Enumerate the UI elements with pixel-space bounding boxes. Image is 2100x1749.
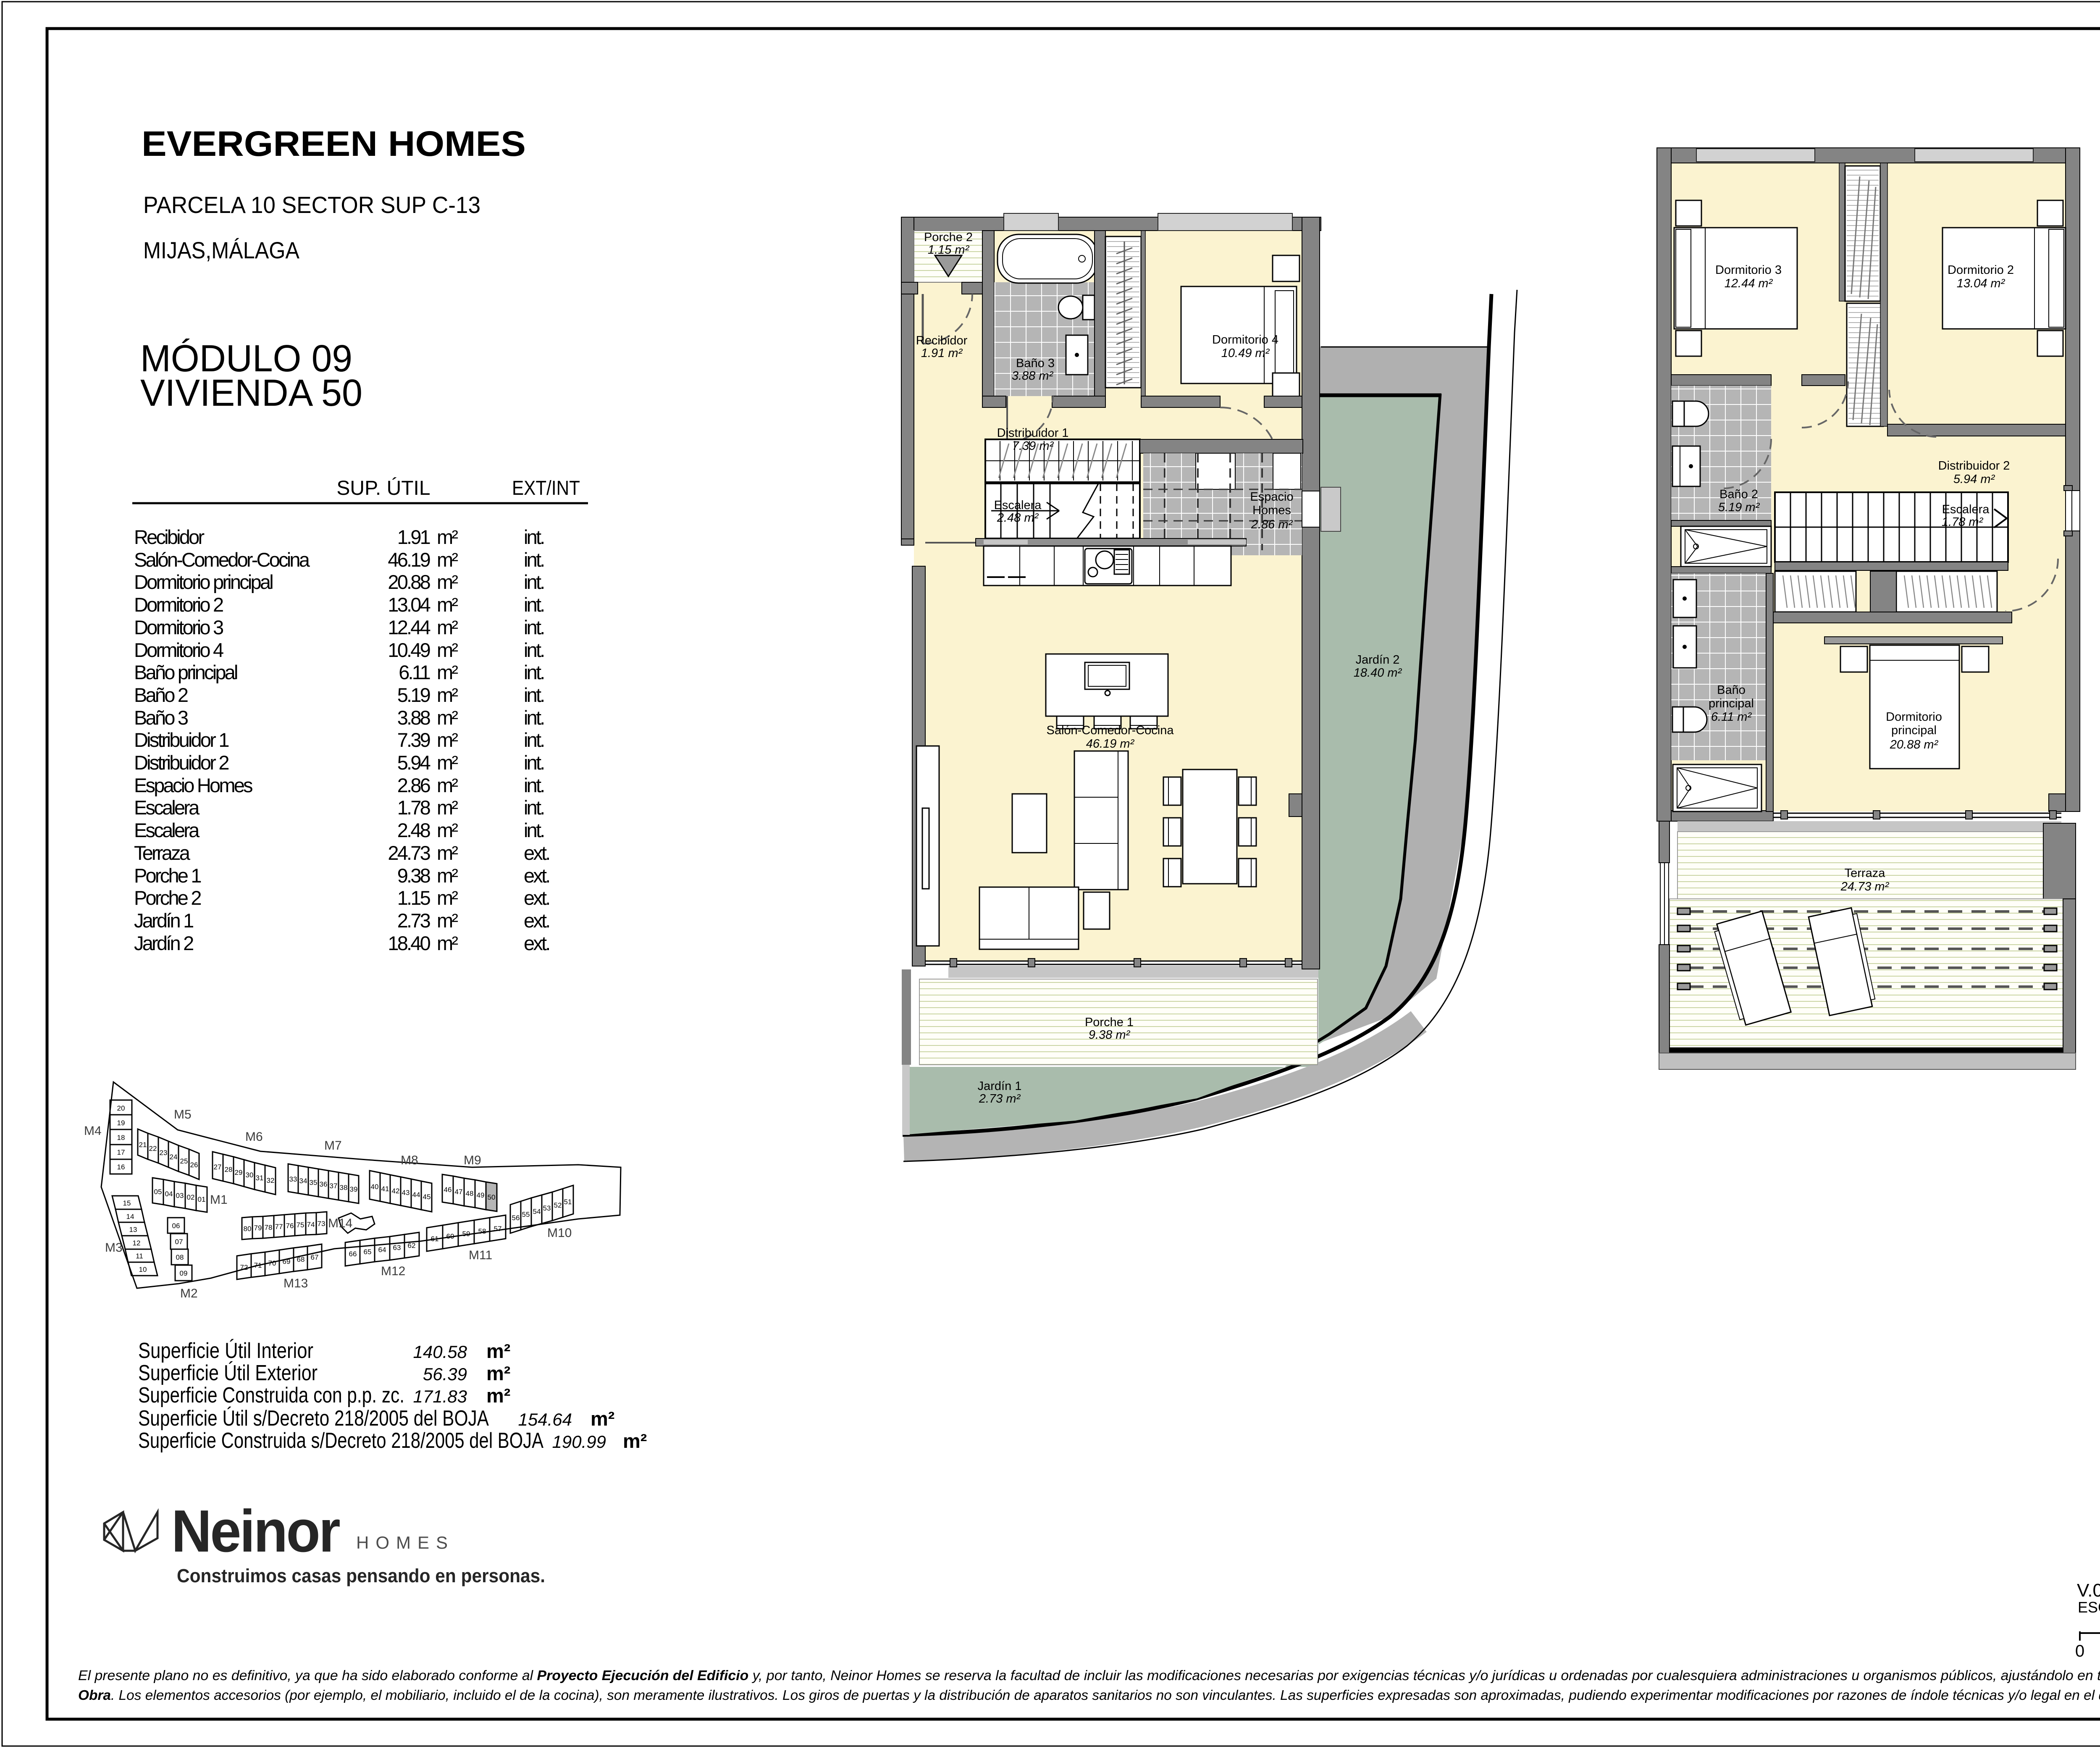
- svg-text:46.19 m²: 46.19 m²: [1086, 737, 1135, 751]
- svg-text:10.49: 10.49: [388, 639, 430, 661]
- svg-text:1.15: 1.15: [397, 887, 430, 909]
- svg-text:1.78: 1.78: [397, 796, 430, 819]
- svg-text:ext.: ext.: [524, 909, 549, 932]
- svg-text:12: 12: [133, 1239, 141, 1247]
- svg-text:int.: int.: [524, 526, 544, 548]
- svg-text:04: 04: [165, 1190, 173, 1198]
- svg-text:55: 55: [522, 1211, 530, 1219]
- svg-text:Homes: Homes: [1252, 504, 1291, 517]
- svg-text:03: 03: [176, 1192, 184, 1200]
- svg-text:28: 28: [225, 1166, 233, 1174]
- svg-text:m²: m²: [486, 1384, 510, 1407]
- svg-text:3.88 m²: 3.88 m²: [1012, 369, 1054, 383]
- svg-text:m²: m²: [437, 887, 458, 909]
- svg-text:M11: M11: [469, 1248, 492, 1262]
- svg-text:M2: M2: [180, 1287, 198, 1300]
- svg-text:40: 40: [371, 1183, 379, 1191]
- svg-text:15: 15: [123, 1199, 131, 1207]
- svg-text:12.44: 12.44: [388, 616, 430, 638]
- svg-text:Escalera: Escalera: [134, 819, 200, 841]
- svg-text:Baño: Baño: [1717, 683, 1746, 697]
- svg-text:70: 70: [268, 1259, 276, 1267]
- svg-text:19: 19: [117, 1119, 125, 1127]
- svg-text:16: 16: [117, 1163, 125, 1171]
- svg-text:67: 67: [311, 1253, 319, 1261]
- svg-text:71: 71: [254, 1261, 262, 1269]
- svg-text:2.86 m²: 2.86 m²: [1251, 518, 1293, 531]
- svg-text:77: 77: [275, 1223, 283, 1231]
- svg-text:44: 44: [412, 1191, 420, 1199]
- svg-text:Espacio: Espacio: [1250, 490, 1293, 504]
- svg-text:48: 48: [466, 1190, 474, 1198]
- svg-text:24: 24: [170, 1153, 178, 1161]
- svg-text:49: 49: [477, 1191, 485, 1199]
- svg-text:54: 54: [533, 1208, 541, 1216]
- svg-text:154.64: 154.64: [518, 1410, 572, 1429]
- svg-text:VIVIENDA 50: VIVIENDA 50: [140, 372, 362, 414]
- svg-text:37: 37: [330, 1182, 338, 1190]
- svg-text:43: 43: [402, 1189, 410, 1197]
- svg-text:14: 14: [126, 1213, 134, 1221]
- svg-text:Porche 1: Porche 1: [134, 864, 201, 887]
- svg-text:m²: m²: [486, 1362, 510, 1384]
- svg-text:Dormitorio 3: Dormitorio 3: [134, 616, 223, 638]
- svg-text:m²: m²: [437, 932, 458, 954]
- svg-text:60: 60: [446, 1232, 454, 1240]
- svg-text:2.48: 2.48: [397, 819, 430, 841]
- svg-text:1.91 m²: 1.91 m²: [921, 347, 963, 360]
- svg-text:Distribuidor 2: Distribuidor 2: [1938, 459, 2010, 473]
- svg-text:80: 80: [244, 1225, 252, 1233]
- svg-text:MIJAS,MÁLAGA: MIJAS,MÁLAGA: [143, 237, 300, 263]
- svg-text:2.48 m²: 2.48 m²: [997, 511, 1039, 525]
- svg-text:22: 22: [149, 1145, 157, 1153]
- svg-text:20: 20: [117, 1104, 125, 1112]
- svg-text:int.: int.: [524, 616, 544, 638]
- svg-text:51: 51: [564, 1198, 572, 1206]
- svg-text:Porche 2: Porche 2: [924, 231, 973, 244]
- svg-text:78: 78: [265, 1224, 273, 1232]
- svg-text:Dormitorio: Dormitorio: [1886, 710, 1942, 724]
- svg-text:21: 21: [139, 1141, 147, 1149]
- svg-text:PARCELA 10 SECTOR SUP C-13: PARCELA 10 SECTOR SUP C-13: [143, 192, 480, 218]
- svg-text:31: 31: [256, 1174, 264, 1182]
- svg-text:Espacio Homes: Espacio Homes: [134, 774, 252, 796]
- svg-text:01: 01: [198, 1195, 206, 1203]
- svg-text:M10: M10: [547, 1226, 572, 1240]
- svg-text:63: 63: [393, 1244, 401, 1252]
- svg-text:10: 10: [139, 1266, 147, 1274]
- svg-text:39: 39: [350, 1185, 358, 1193]
- svg-text:9.38 m²: 9.38 m²: [1089, 1028, 1131, 1042]
- svg-text:Dormitorio 2: Dormitorio 2: [1948, 263, 2014, 277]
- svg-text:64: 64: [378, 1246, 386, 1254]
- svg-text:02: 02: [187, 1193, 195, 1201]
- svg-text:69: 69: [283, 1258, 291, 1266]
- svg-text:65: 65: [364, 1248, 372, 1256]
- svg-text:HOMES: HOMES: [356, 1533, 454, 1552]
- svg-text:M8: M8: [401, 1153, 418, 1167]
- svg-text:2.73: 2.73: [397, 909, 430, 932]
- svg-text:int.: int.: [524, 594, 544, 616]
- svg-text:1.15 m²: 1.15 m²: [928, 243, 970, 257]
- svg-text:32: 32: [267, 1177, 275, 1184]
- svg-text:Distribuidor 1: Distribuidor 1: [997, 426, 1069, 440]
- svg-text:9.38: 9.38: [397, 864, 430, 887]
- svg-text:int.: int.: [524, 796, 544, 819]
- svg-text:35: 35: [310, 1179, 318, 1187]
- svg-text:30: 30: [246, 1171, 254, 1179]
- svg-text:171.83: 171.83: [413, 1387, 467, 1406]
- svg-text:Construimos casas pensando en: Construimos casas pensando en personas.: [177, 1565, 545, 1586]
- svg-text:SUP. ÚTIL: SUP. ÚTIL: [336, 477, 430, 499]
- svg-text:Superficie Construida con p.p.: Superficie Construida con p.p. zc.: [138, 1383, 404, 1408]
- svg-text:m²: m²: [437, 842, 458, 864]
- svg-text:6.11 m²: 6.11 m²: [1711, 710, 1752, 724]
- svg-text:principal: principal: [1891, 724, 1937, 737]
- svg-text:20.88: 20.88: [388, 571, 430, 593]
- svg-text:Salón-Comedor-Cocina: Salón-Comedor-Cocina: [1046, 724, 1174, 737]
- svg-text:76: 76: [286, 1222, 294, 1230]
- svg-text:07: 07: [175, 1238, 183, 1246]
- svg-text:m²: m²: [437, 549, 458, 571]
- svg-text:m²: m²: [437, 909, 458, 932]
- svg-text:m²: m²: [437, 864, 458, 887]
- svg-text:42: 42: [392, 1187, 400, 1195]
- svg-text:m²: m²: [437, 616, 458, 638]
- svg-text:M9: M9: [464, 1153, 481, 1167]
- svg-text:Jardín 1: Jardín 1: [134, 909, 193, 932]
- svg-text:Porche 1: Porche 1: [1085, 1016, 1134, 1029]
- svg-text:m²: m²: [437, 796, 458, 819]
- svg-text:int.: int.: [524, 729, 544, 751]
- svg-text:int.: int.: [524, 571, 544, 593]
- svg-text:m²: m²: [486, 1340, 510, 1362]
- svg-text:M13: M13: [283, 1276, 308, 1290]
- svg-text:0: 0: [2075, 1642, 2084, 1660]
- svg-text:68: 68: [297, 1255, 305, 1263]
- svg-text:m²: m²: [437, 774, 458, 796]
- svg-text:27: 27: [214, 1163, 222, 1171]
- svg-text:Jardín 1: Jardín 1: [978, 1079, 1022, 1093]
- svg-text:11: 11: [136, 1252, 143, 1260]
- svg-text:6.11: 6.11: [399, 661, 430, 683]
- svg-text:Baño 3: Baño 3: [134, 706, 188, 729]
- svg-text:26: 26: [190, 1161, 198, 1169]
- svg-text:Neinor: Neinor: [171, 1498, 340, 1565]
- svg-text:m²: m²: [437, 526, 458, 548]
- svg-text:Jardín 2: Jardín 2: [134, 932, 193, 954]
- svg-text:18.40 m²: 18.40 m²: [1354, 666, 1402, 680]
- svg-text:M5: M5: [174, 1108, 192, 1121]
- svg-text:M1: M1: [210, 1193, 228, 1207]
- svg-text:5.94 m²: 5.94 m²: [1953, 473, 1995, 486]
- svg-text:18.40: 18.40: [388, 932, 430, 954]
- svg-text:Superficie Útil s/Decreto 218/: Superficie Útil s/Decreto 218/2005 del B…: [138, 1406, 489, 1431]
- svg-text:int.: int.: [524, 706, 544, 729]
- svg-text:M6: M6: [245, 1130, 263, 1144]
- svg-text:3.88: 3.88: [397, 706, 430, 729]
- svg-text:08: 08: [176, 1253, 184, 1261]
- svg-text:m²: m²: [591, 1408, 614, 1430]
- svg-text:61: 61: [431, 1235, 439, 1243]
- svg-text:EVERGREEN HOMES: EVERGREEN HOMES: [142, 124, 526, 163]
- svg-text:m²: m²: [623, 1430, 647, 1452]
- svg-text:El presente plano no es defini: El presente plano no es definitivo, ya q…: [78, 1668, 2100, 1683]
- svg-text:74: 74: [307, 1221, 315, 1229]
- svg-text:Jardín 2: Jardín 2: [1356, 653, 1400, 667]
- svg-text:46: 46: [444, 1186, 452, 1194]
- svg-text:M14: M14: [328, 1216, 352, 1230]
- svg-text:52: 52: [554, 1201, 562, 1209]
- svg-text:50: 50: [488, 1193, 496, 1201]
- svg-text:56: 56: [512, 1214, 520, 1222]
- svg-text:m²: m²: [437, 594, 458, 616]
- svg-text:34: 34: [299, 1177, 307, 1185]
- svg-text:int.: int.: [524, 751, 544, 774]
- svg-text:M3: M3: [105, 1241, 123, 1255]
- svg-text:75: 75: [297, 1221, 304, 1229]
- svg-text:73: 73: [318, 1220, 325, 1228]
- svg-text:ext.: ext.: [524, 932, 549, 954]
- svg-text:M4: M4: [84, 1124, 102, 1138]
- svg-text:13: 13: [129, 1226, 137, 1234]
- svg-text:int.: int.: [524, 684, 544, 706]
- svg-text:m²: m²: [437, 819, 458, 841]
- svg-text:M12: M12: [381, 1264, 405, 1278]
- svg-text:principal: principal: [1709, 697, 1754, 710]
- svg-text:M7: M7: [324, 1139, 342, 1153]
- svg-text:13.04 m²: 13.04 m²: [1957, 277, 2005, 290]
- svg-text:5.94: 5.94: [397, 751, 430, 774]
- svg-text:59: 59: [462, 1230, 470, 1238]
- svg-text:ext.: ext.: [524, 864, 549, 887]
- svg-text:Baño 2: Baño 2: [134, 684, 188, 706]
- svg-text:17: 17: [117, 1148, 125, 1156]
- svg-text:56.39: 56.39: [423, 1364, 467, 1384]
- svg-text:Distribuidor 1: Distribuidor 1: [134, 729, 228, 751]
- svg-text:12.44 m²: 12.44 m²: [1725, 277, 1773, 290]
- svg-text:190.99: 190.99: [552, 1432, 606, 1452]
- svg-text:29: 29: [235, 1169, 243, 1177]
- svg-text:int.: int.: [524, 774, 544, 796]
- svg-text:72: 72: [240, 1263, 248, 1271]
- svg-text:2.86: 2.86: [397, 774, 430, 796]
- svg-text:38: 38: [340, 1184, 348, 1192]
- svg-text:Recibidor: Recibidor: [134, 526, 204, 548]
- svg-text:Obra. Los elementos accesorios: Obra. Los elementos accesorios (por ejem…: [78, 1687, 2100, 1703]
- svg-text:int.: int.: [524, 819, 544, 841]
- svg-text:05: 05: [154, 1188, 162, 1196]
- svg-text:7.39: 7.39: [397, 729, 430, 751]
- svg-text:m²: m²: [437, 729, 458, 751]
- svg-text:41: 41: [381, 1185, 389, 1193]
- svg-text:45: 45: [423, 1193, 431, 1201]
- svg-text:ESCALA GRÁFICA: ESCALA GRÁFICA: [2078, 1599, 2100, 1616]
- svg-text:20.88 m²: 20.88 m²: [1890, 738, 1939, 751]
- svg-text:09: 09: [180, 1269, 188, 1277]
- svg-text:Baño 2: Baño 2: [1719, 488, 1758, 501]
- svg-text:Recibidor: Recibidor: [916, 334, 968, 347]
- svg-text:2.73 m²: 2.73 m²: [979, 1092, 1021, 1106]
- svg-text:1.91: 1.91: [397, 526, 430, 548]
- svg-text:66: 66: [349, 1250, 357, 1258]
- svg-text:Superficie Construida s/Decret: Superficie Construida s/Decreto 218/2005…: [138, 1429, 543, 1453]
- svg-text:m²: m²: [437, 706, 458, 729]
- svg-text:24.73 m²: 24.73 m²: [1840, 880, 1890, 893]
- svg-text:53: 53: [543, 1204, 551, 1212]
- svg-text:Dormitorio 4: Dormitorio 4: [134, 639, 223, 661]
- svg-text:Dormitorio 3: Dormitorio 3: [1715, 263, 1782, 277]
- svg-text:Dormitorio 4: Dormitorio 4: [1212, 333, 1278, 347]
- svg-text:Escalera: Escalera: [134, 796, 200, 819]
- svg-text:Superficie Útil Exterior: Superficie Útil Exterior: [138, 1361, 318, 1385]
- svg-text:24.73: 24.73: [388, 842, 430, 864]
- svg-text:62: 62: [408, 1242, 416, 1250]
- svg-text:int.: int.: [524, 549, 544, 571]
- svg-text:5.19 m²: 5.19 m²: [1718, 501, 1760, 514]
- svg-text:5.19: 5.19: [397, 684, 430, 706]
- svg-text:m²: m²: [437, 684, 458, 706]
- svg-text:Porche 2: Porche 2: [134, 887, 201, 909]
- svg-text:m²: m²: [437, 571, 458, 593]
- svg-text:23: 23: [160, 1149, 168, 1157]
- svg-text:33: 33: [289, 1175, 297, 1183]
- svg-text:1.78 m²: 1.78 m²: [1942, 515, 1984, 529]
- svg-text:m²: m²: [437, 639, 458, 661]
- svg-text:Distribuidor 2: Distribuidor 2: [134, 751, 228, 774]
- svg-text:79: 79: [254, 1224, 262, 1232]
- svg-text:57: 57: [494, 1225, 502, 1233]
- svg-text:m²: m²: [437, 751, 458, 774]
- svg-text:int.: int.: [524, 639, 544, 661]
- svg-text:25: 25: [180, 1157, 188, 1165]
- svg-text:Dormitorio principal: Dormitorio principal: [134, 571, 273, 593]
- svg-text:Terraza: Terraza: [1845, 867, 1886, 880]
- svg-text:Escalera: Escalera: [994, 499, 1042, 512]
- svg-text:int.: int.: [524, 661, 544, 683]
- svg-text:m²: m²: [437, 661, 458, 683]
- svg-text:10.49 m²: 10.49 m²: [1221, 347, 1270, 360]
- svg-text:140.58: 140.58: [413, 1342, 467, 1362]
- svg-text:7.39 m²: 7.39 m²: [1012, 439, 1054, 453]
- svg-text:EXT/INT: EXT/INT: [512, 477, 580, 499]
- svg-text:Escalera: Escalera: [1942, 503, 1990, 516]
- svg-text:18: 18: [117, 1134, 125, 1142]
- svg-text:ext.: ext.: [524, 887, 549, 909]
- svg-text:V.03 - FEBRERO 2022: V.03 - FEBRERO 2022: [2077, 1580, 2100, 1601]
- svg-text:Baño 3: Baño 3: [1016, 357, 1055, 370]
- svg-text:13.04: 13.04: [388, 594, 430, 616]
- svg-text:Dormitorio 2: Dormitorio 2: [134, 594, 223, 616]
- svg-text:ext.: ext.: [524, 842, 549, 864]
- svg-text:47: 47: [455, 1188, 463, 1196]
- svg-text:Terraza: Terraza: [134, 842, 191, 864]
- svg-text:Salón-Comedor-Cocina: Salón-Comedor-Cocina: [134, 549, 310, 571]
- svg-text:36: 36: [320, 1180, 328, 1188]
- svg-text:58: 58: [478, 1227, 486, 1235]
- svg-text:Baño principal: Baño principal: [134, 661, 237, 683]
- svg-text:Superficie Útil Interior: Superficie Útil Interior: [138, 1339, 313, 1363]
- svg-text:46.19: 46.19: [388, 549, 430, 571]
- svg-text:06: 06: [172, 1222, 180, 1230]
